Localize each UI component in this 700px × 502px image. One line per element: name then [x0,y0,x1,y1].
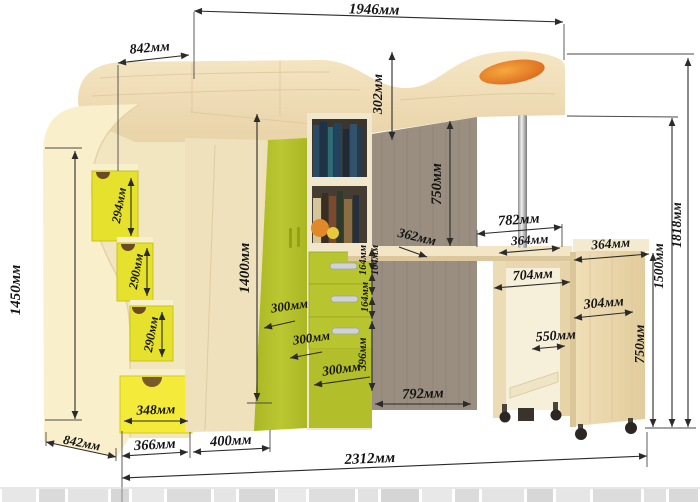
dim-total-height: 1818мм [669,202,684,248]
dim-cabinet-top-depth: 364мм [590,235,631,253]
dim-drawer-height-1: 164мм [358,245,369,275]
dim-stairs-height: 1450мм [8,265,24,316]
drawer-handle [330,263,357,269]
dim-stairs-width: 366мм [133,436,176,454]
dim-stairs-drawer-width: 348мм [135,401,175,417]
dark-panel [372,117,477,410]
support-pole [518,115,527,248]
diagram-canvas: 1946мм 842мм 302мм 294мм 290мм 290мм 145… [0,0,700,502]
dim-bed-rail-height: 302мм [371,74,386,116]
decor-ball-yellow [327,227,339,239]
dim-bed-clearance: 750мм [429,163,445,205]
dim-pedestal-width: 704мм [512,267,554,285]
decor-ball-orange [311,219,329,237]
caster-block [518,408,534,421]
dim-bed-length: 1946мм [349,1,400,18]
dim-cabinet-height: 750мм [632,325,647,364]
books-top [313,122,364,177]
under-bed-back-panel [372,117,477,410]
pedestal-left-panel [493,261,506,418]
dim-desk-area-width: 782мм [497,211,540,230]
dim-wardrobe-height: 1400мм [237,243,253,294]
wardrobe-handle [297,227,300,247]
furniture-dimension-diagram: 1946мм 842мм 302мм 294мм 290мм 290мм 145… [0,0,700,502]
dim-desk-half-width: 364мм [510,231,549,249]
dim-height-under-bed: 1500мм [651,243,666,289]
dim-drawer-height-3: 164мм [360,282,371,312]
drawer-handle [332,328,359,334]
wardrobe-handle [289,228,292,248]
desk-front-edge [348,256,572,261]
wardrobe-corner-face [185,138,268,432]
dim-wardrobe-width: 400мм [209,432,252,450]
desk-top [348,246,572,256]
drawer-handle [331,296,358,302]
dim-pedestal-clearance: 550мм [535,328,577,346]
dim-desk-width: 792мм [402,385,444,402]
thumbnail-strip [0,488,700,502]
desk [348,246,572,261]
dim-under-drawer: 396мм [357,337,369,371]
dim-total-width: 2312мм [343,450,395,468]
dim-drawer-height-2: 164мм [370,245,381,275]
